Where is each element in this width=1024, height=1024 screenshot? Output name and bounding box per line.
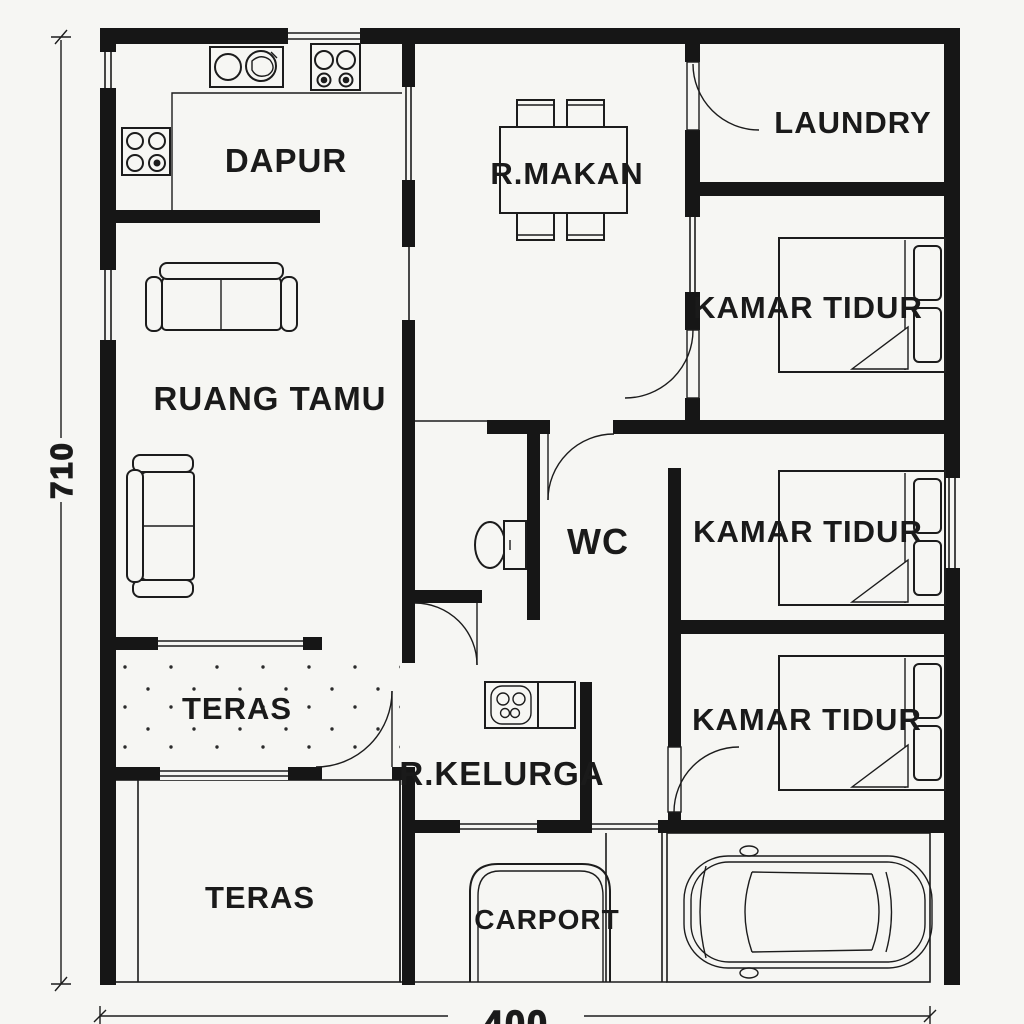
room-label-ruang-tamu: RUANG TAMU (153, 380, 386, 417)
wall-top (100, 28, 960, 44)
wall-laundry-bottom (685, 182, 960, 196)
wall-bedroom1-bottom (685, 420, 960, 434)
window-icon (460, 820, 537, 833)
window-icon (944, 478, 960, 568)
toilet-icon (475, 521, 526, 569)
dimension-height-value: 710 (44, 441, 79, 499)
wall-bottom-band-c (658, 820, 960, 833)
floor-plan-drawing: DAPUR R.MAKAN LAUNDRY KAMAR TIDUR RUANG … (0, 0, 1024, 1024)
window-icon (402, 87, 415, 180)
wall-center-e (402, 767, 415, 985)
wall-center-b (402, 180, 415, 247)
window-icon (100, 270, 116, 340)
room-label-dapur: DAPUR (225, 142, 347, 179)
window-icon (288, 28, 360, 44)
room-label-laundry: LAUNDRY (774, 105, 931, 140)
wall-left (100, 28, 116, 985)
room-label-kamar-tidur-1: KAMAR TIDUR (693, 290, 923, 325)
wall-dapur-bottom (116, 210, 320, 223)
wall-bottom-band-b (537, 820, 592, 833)
wall-center-a (402, 28, 415, 87)
wall-bedroom3-left-a (668, 634, 681, 747)
room-label-rmakan: R.MAKAN (490, 156, 643, 191)
floor-plan-page: DAPUR R.MAKAN LAUNDRY KAMAR TIDUR RUANG … (0, 0, 1024, 1024)
wall-rmakan-right-b (685, 130, 700, 217)
wall-bottom-band-a (402, 820, 460, 833)
wall-rmakan-bottom-b (613, 420, 700, 434)
room-label-wc: WC (567, 521, 629, 562)
wall-kelurga-right (580, 682, 592, 820)
wall-teras2-a (103, 767, 160, 780)
wall-teras1-b (303, 637, 322, 650)
room-label-teras-lower: TERAS (205, 880, 315, 915)
wall-rmakan-bottom-a (487, 420, 550, 434)
room-label-carport: CARPORT (474, 904, 619, 935)
wall-center-c (402, 320, 415, 603)
wall-bedroom2-bottom (668, 620, 960, 634)
window-icon (100, 52, 116, 88)
room-label-teras-upper: TERAS (182, 691, 292, 726)
room-label-kamar-tidur-2: KAMAR TIDUR (693, 514, 923, 549)
window-icon (592, 820, 658, 833)
sofa-icon (146, 263, 297, 331)
room-label-r-kelurga: R.KELURGA (399, 755, 604, 792)
wall-teras1-a (103, 637, 158, 650)
wall-wc-left (527, 434, 540, 620)
wall-wc-right (668, 468, 681, 620)
dimension-width-value: 400 (483, 1003, 549, 1024)
wall-rmakan-right-a (685, 28, 700, 62)
room-label-kamar-tidur-3: KAMAR TIDUR (692, 702, 922, 737)
wall-center-d (402, 603, 415, 663)
wall-teras2-b (288, 767, 322, 780)
wall-hall-stub (402, 590, 482, 603)
window-icon (160, 767, 288, 780)
window-icon (685, 217, 700, 292)
window-icon (158, 637, 303, 650)
sofa-icon (127, 455, 194, 597)
